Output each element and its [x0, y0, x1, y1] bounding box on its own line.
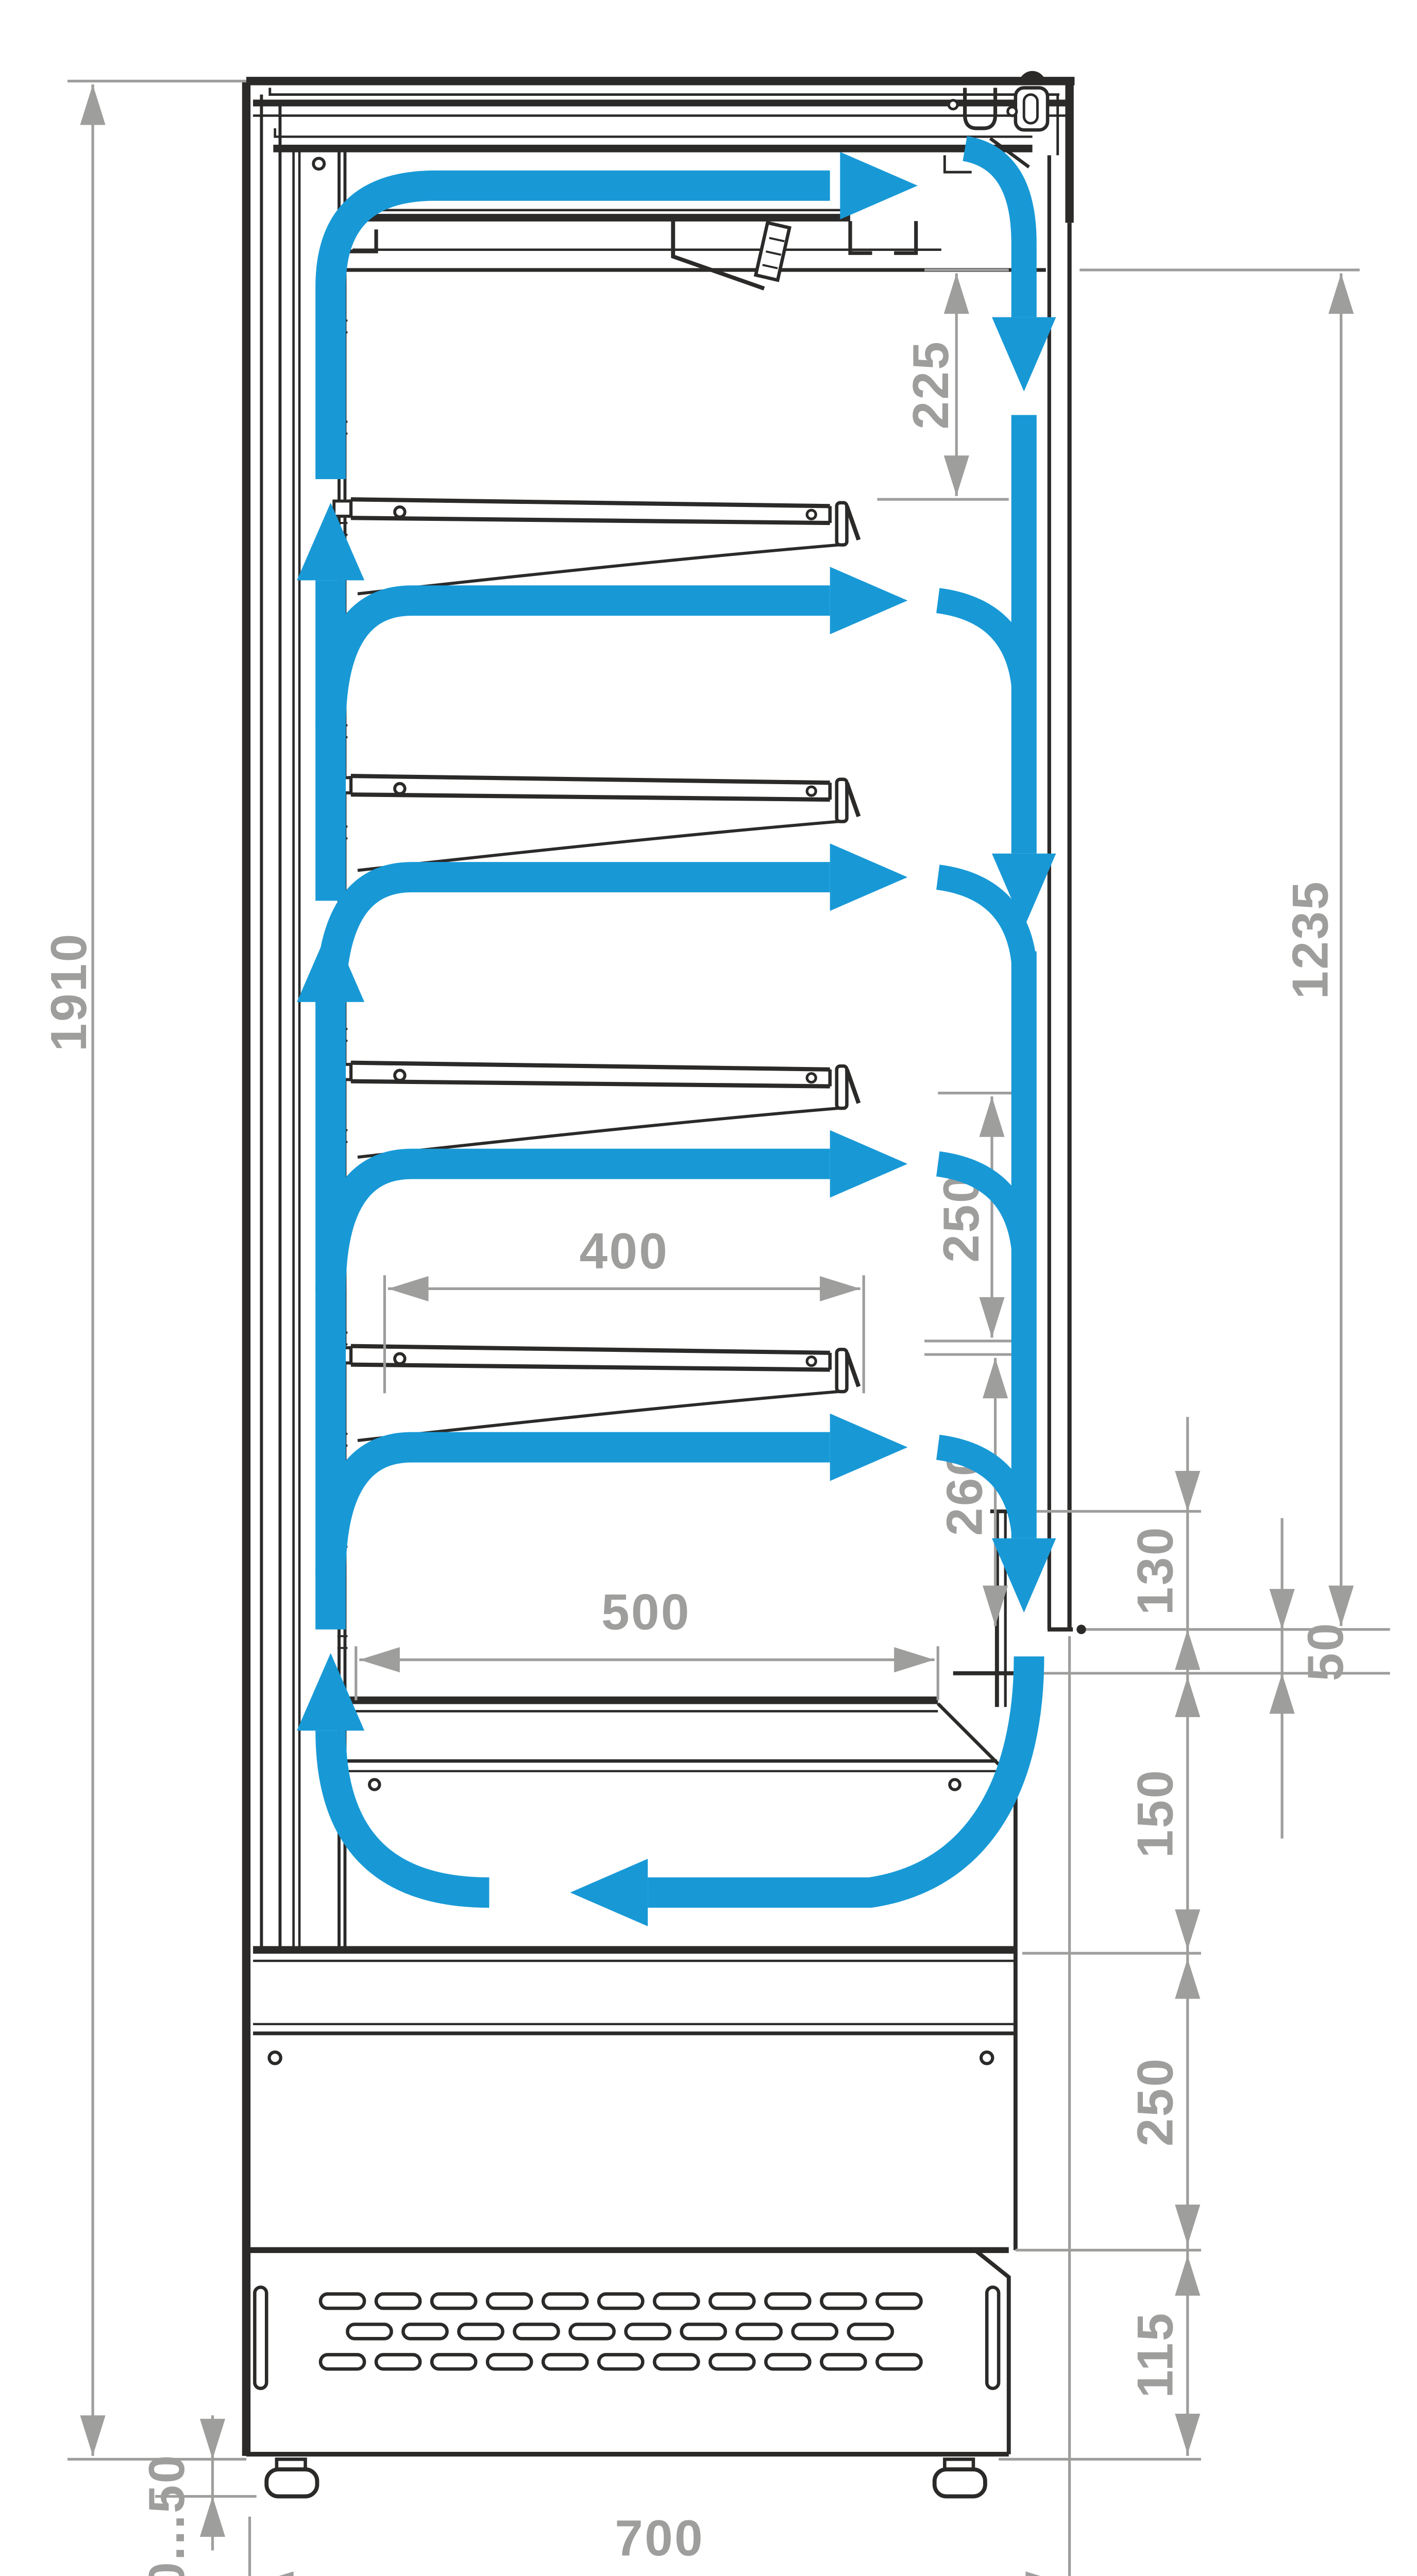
airflow-curtain-inlet [965, 148, 1024, 317]
fan-shroud [673, 221, 764, 289]
airflow-up-arrowhead [297, 1653, 364, 1731]
airflow-up-arrowhead [297, 503, 364, 581]
price-rail [837, 779, 847, 822]
bottom-well [346, 1512, 1014, 1790]
shelf-3 [334, 1063, 858, 1157]
price-rail [837, 1066, 847, 1108]
dim-duct-section-label: 150 [1126, 1769, 1183, 1858]
dim-well-width-label: 500 [601, 1584, 691, 1640]
hinge-knuckle [1019, 71, 1045, 84]
airflow-right-arrowhead [830, 567, 908, 634]
adjustable-feet [266, 2459, 985, 2496]
shelf-clip [847, 1070, 858, 1103]
airflow-down-arrowhead [992, 317, 1056, 392]
shelf-clip [847, 1353, 858, 1386]
dim-overall-height-label: 1910 [40, 932, 97, 1052]
shelf-clip [847, 783, 858, 816]
hanger-hook [894, 221, 916, 253]
airflow-shelf-branch [331, 1447, 830, 1575]
airflow-shelf-branch [331, 601, 830, 729]
shelf-clip [847, 506, 858, 539]
dim-overall-depth-label: 700 [615, 2510, 704, 2566]
dim-riser-height-label: 130 [1126, 1526, 1183, 1615]
shelf-2 [334, 776, 858, 870]
dim-return-gap-label: 50 [1297, 1621, 1354, 1681]
airflow-right-arrowhead [830, 1130, 908, 1198]
airflow-canopy-duct [331, 185, 830, 479]
dim-grille-height-label: 115 [1126, 2311, 1183, 2398]
airflow-right-arrowhead [830, 843, 908, 911]
airflow-return-duct [648, 1656, 1029, 1892]
grille-slots [320, 2294, 921, 2369]
airflow-shelf-branch [331, 877, 830, 1006]
airflow-right-arrowhead [840, 152, 918, 219]
dim-shelf-width-label: 400 [579, 1223, 669, 1279]
airflow-left-arrowhead [570, 1859, 648, 1926]
airflow-merge-curve [938, 601, 1024, 685]
drawing-canvas: 1910 225 1235 400 250 260 500 130 50 150… [0, 0, 1417, 2576]
dim-base-height-label: 250 [1126, 2057, 1183, 2147]
airflow-cross-section-diagram: 1910 225 1235 400 250 260 500 130 50 150… [0, 0, 1417, 2576]
cabinet-structure [246, 71, 1074, 2497]
dim-top-clearance-label: 225 [902, 340, 959, 430]
canopy-screw [313, 158, 324, 169]
price-rail [837, 1349, 847, 1392]
airflow-right-arrowhead [830, 1414, 908, 1481]
price-rail [837, 503, 847, 545]
shelf-4 [334, 1346, 858, 1440]
reference-dot [1076, 1625, 1086, 1634]
hanger-hook [850, 221, 872, 253]
vent-grille [246, 2250, 1009, 2454]
shelf-1 [334, 499, 858, 594]
airflow-rear-bottom-curve [331, 1731, 490, 1892]
dim-feet-adjust-label: 30...50 [138, 2453, 195, 2576]
dim-opening-height-label: 1235 [1281, 880, 1338, 999]
